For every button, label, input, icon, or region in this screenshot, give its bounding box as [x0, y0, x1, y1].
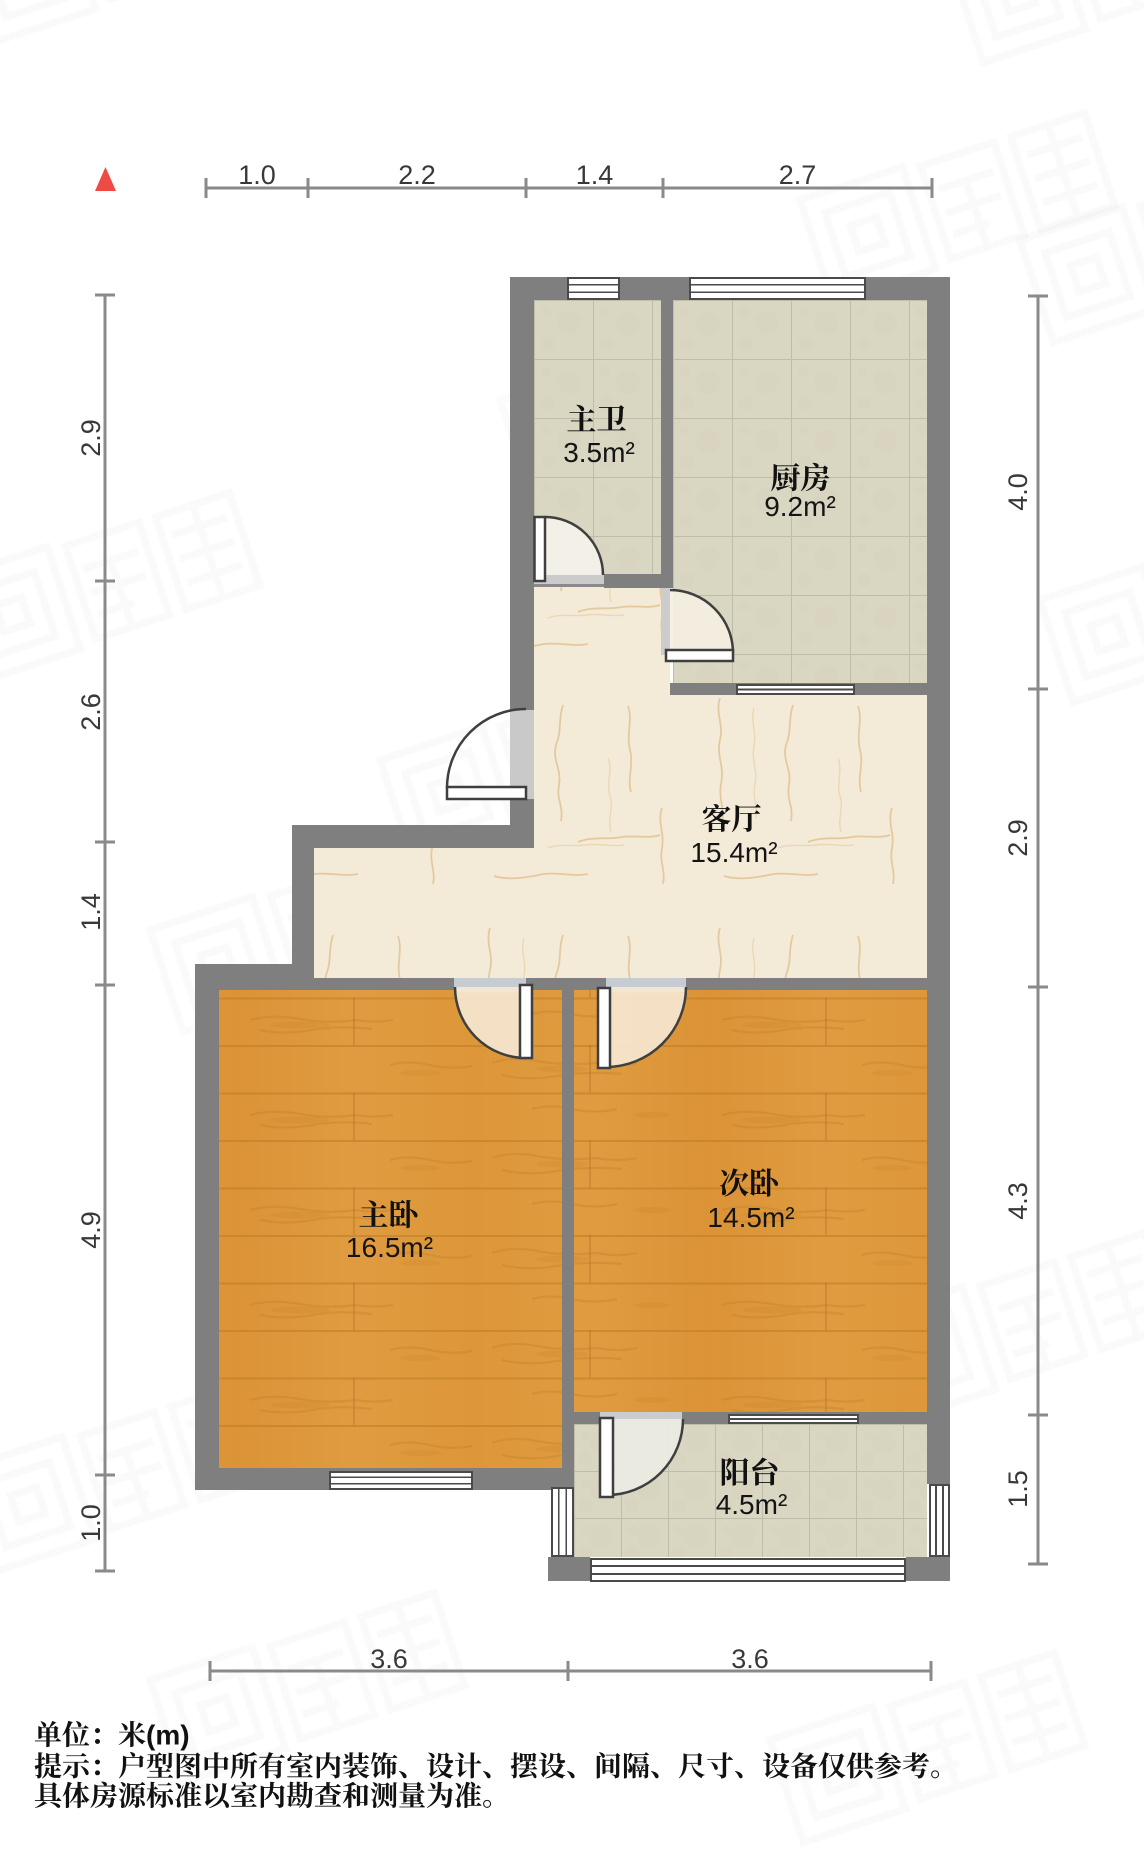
svg-text:1.5: 1.5 — [1003, 1470, 1033, 1508]
svg-text:4.5m²: 4.5m² — [716, 1489, 788, 1520]
svg-text:16.5m²: 16.5m² — [346, 1232, 433, 1263]
svg-text:2.9: 2.9 — [1003, 819, 1033, 857]
svg-text:2.9: 2.9 — [76, 419, 106, 457]
svg-text:1.0: 1.0 — [238, 160, 276, 190]
svg-text:2.7: 2.7 — [779, 160, 817, 190]
svg-text:3.6: 3.6 — [731, 1644, 769, 1674]
svg-text:1.4: 1.4 — [576, 160, 614, 190]
svg-text:4.9: 4.9 — [76, 1211, 106, 1249]
svg-text:3.6: 3.6 — [370, 1644, 408, 1674]
svg-text:2.2: 2.2 — [398, 160, 436, 190]
svg-text:14.5m²: 14.5m² — [707, 1202, 794, 1233]
svg-text:4.3: 4.3 — [1003, 1182, 1033, 1220]
svg-text:1.0: 1.0 — [76, 1504, 106, 1542]
svg-text:15.4m²: 15.4m² — [690, 837, 777, 868]
svg-text:9.2m²: 9.2m² — [764, 491, 836, 522]
svg-text:1.4: 1.4 — [76, 893, 106, 931]
svg-text:3.5m²: 3.5m² — [563, 437, 635, 468]
svg-text:4.0: 4.0 — [1003, 473, 1033, 511]
svg-text:(m): (m) — [146, 1720, 190, 1751]
svg-text:2.6: 2.6 — [76, 693, 106, 731]
